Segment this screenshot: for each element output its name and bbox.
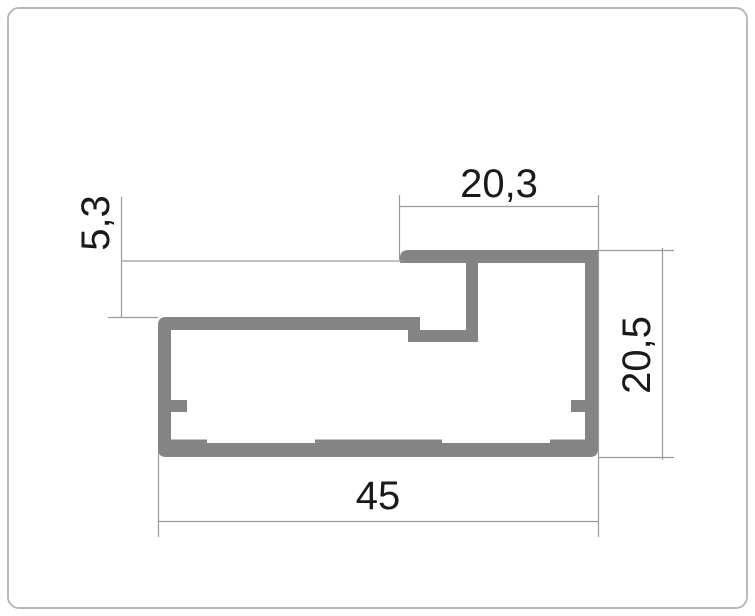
dimension-label-top-width: 20,3 bbox=[460, 164, 538, 204]
dimension-label-left-depth: 5,3 bbox=[76, 195, 116, 251]
dimension-label-bottom-width: 45 bbox=[356, 476, 401, 516]
bottom-ribs bbox=[171, 440, 585, 444]
bottom-rib-center bbox=[315, 440, 442, 444]
drawing-canvas: 20,3 5,3 20,5 45 bbox=[0, 0, 755, 616]
bottom-rib-right bbox=[550, 440, 585, 444]
profile-drawing bbox=[0, 0, 755, 616]
dimension-label-right-height: 20,5 bbox=[617, 316, 657, 394]
bottom-rib-left bbox=[171, 440, 207, 444]
profile-cross-section bbox=[158, 250, 598, 457]
